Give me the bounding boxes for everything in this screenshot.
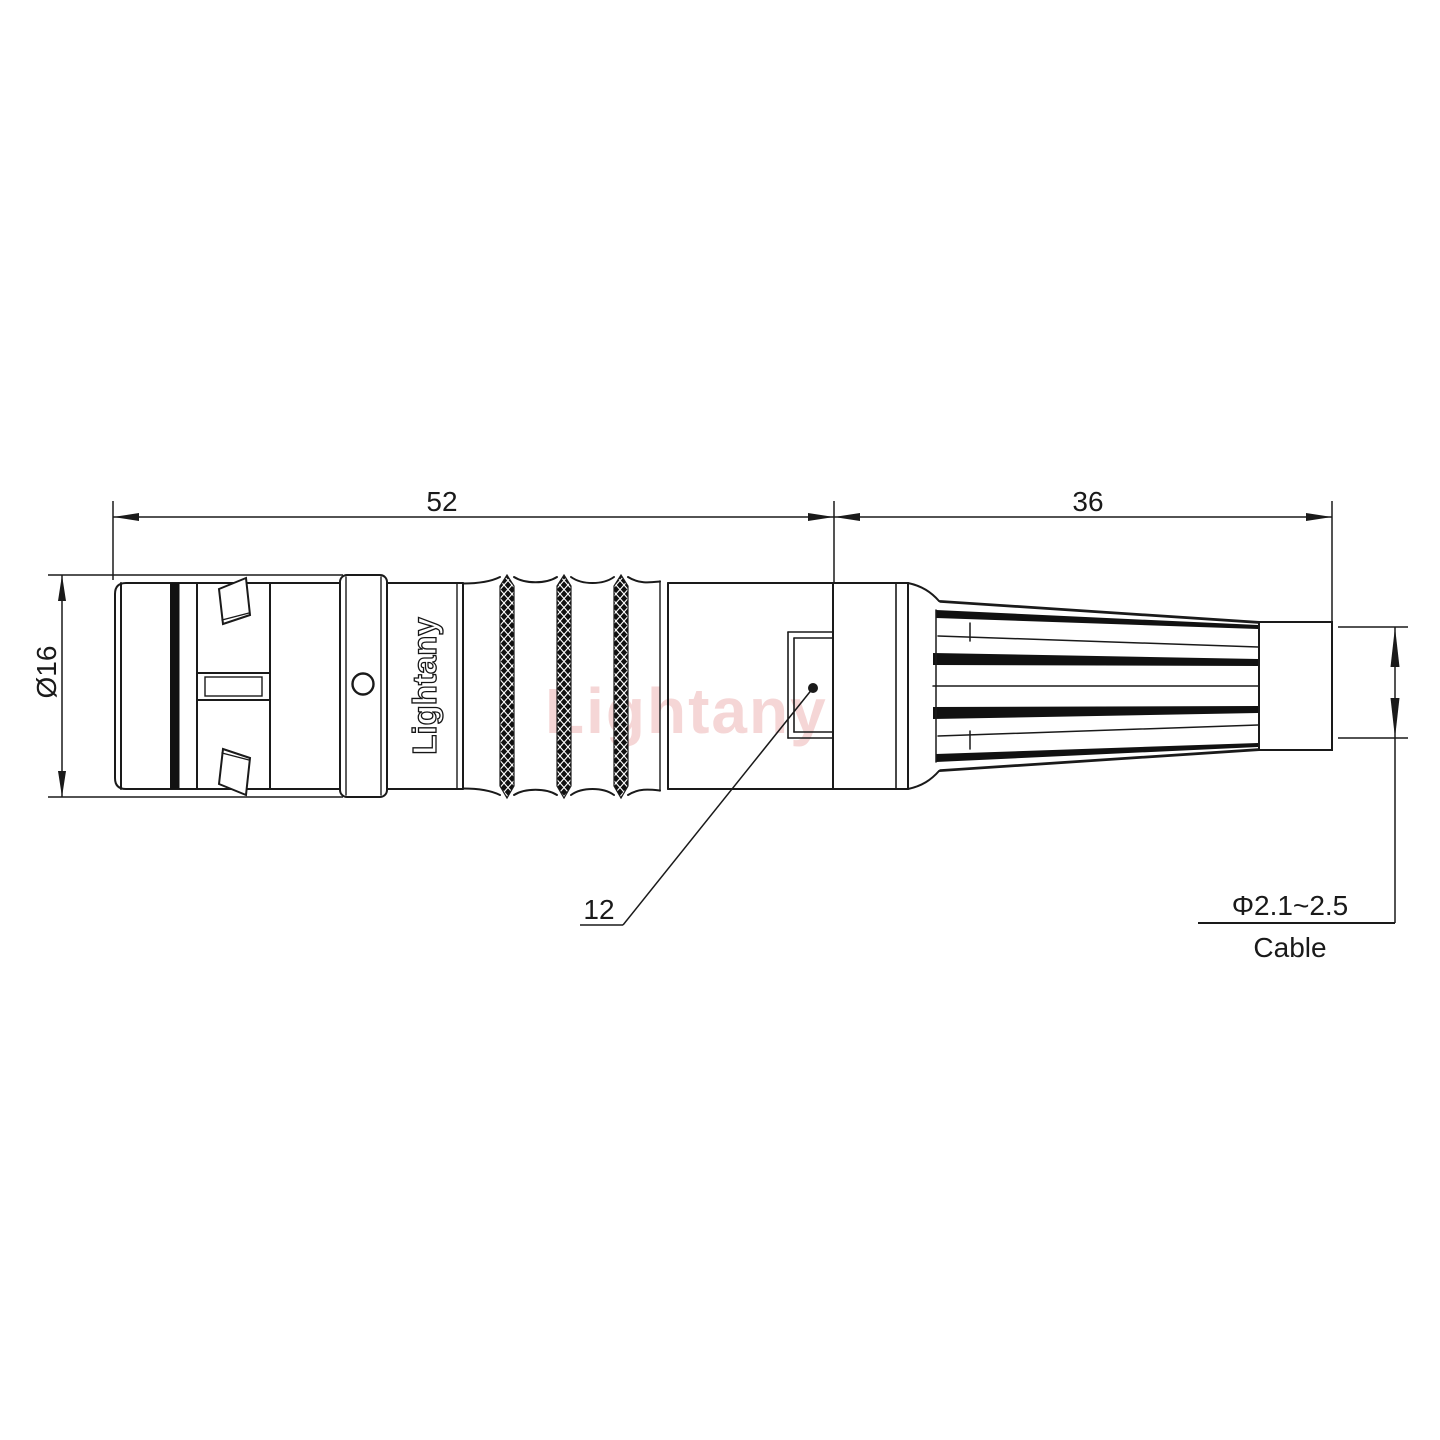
- latch-bridge: [197, 673, 270, 700]
- latch-tab-top: [219, 578, 250, 624]
- knurl-band-2: [557, 575, 571, 798]
- collar-ring: [340, 575, 387, 797]
- arrowhead: [808, 513, 834, 521]
- arrowhead: [1306, 513, 1332, 521]
- front-shell: [115, 578, 340, 795]
- dim-12-label: 12: [583, 894, 614, 925]
- dim-52-label: 52: [426, 486, 457, 517]
- cable-label: Cable: [1253, 932, 1326, 963]
- front-shell-dark-band: [170, 583, 180, 789]
- dimension-dia16: Ø16: [31, 575, 343, 797]
- cable-end-sleeve: [1259, 622, 1332, 750]
- watermark-text: Lightany: [545, 675, 828, 747]
- arrowhead: [113, 513, 139, 521]
- arrowhead: [58, 771, 66, 797]
- dim-dia16-label: Ø16: [31, 646, 62, 699]
- bend-relief-boot: [908, 583, 1259, 789]
- arrowhead: [58, 575, 66, 601]
- arrowhead: [1391, 698, 1400, 738]
- knurl-band-3: [614, 575, 628, 798]
- boot-flutes: [933, 602, 1258, 770]
- technical-drawing-page: Lightany: [0, 0, 1440, 1440]
- connector-drawing-canvas: Lightany: [0, 0, 1440, 1440]
- knurl-band-1: [500, 575, 514, 798]
- dimension-52: 52: [113, 486, 834, 583]
- cable-range-label: Φ2.1~2.5: [1232, 890, 1349, 921]
- arrowhead: [1391, 627, 1400, 667]
- dim-36-label: 36: [1072, 486, 1103, 517]
- arrowhead: [834, 513, 860, 521]
- shell-brand-text: Lightany: [406, 617, 443, 755]
